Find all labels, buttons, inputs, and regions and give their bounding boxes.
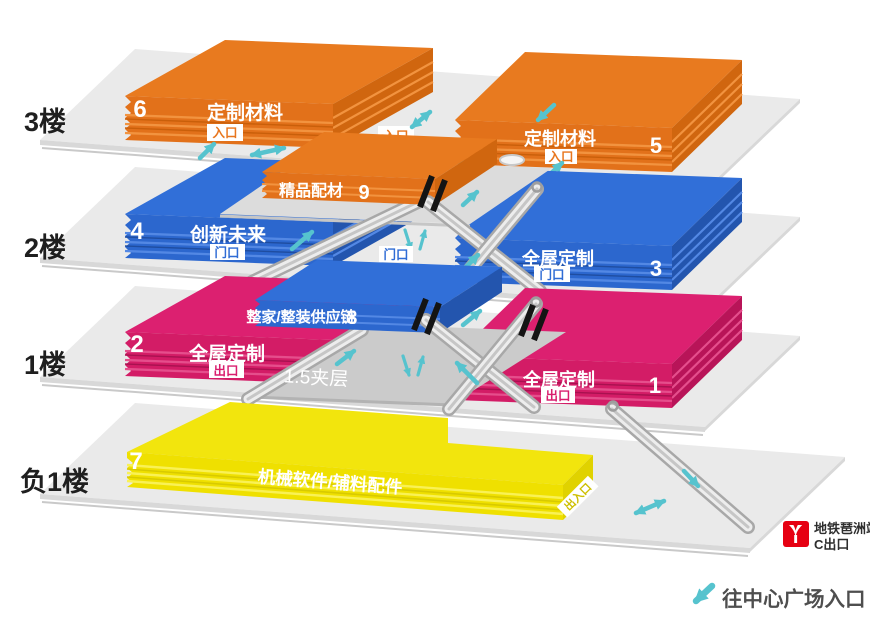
- arrow-down-left-icon: [696, 586, 712, 601]
- hall-8-name: 整家/整装供应链: [246, 308, 356, 326]
- hall-9-name: 精品配材: [279, 181, 343, 200]
- door-label-f2-left: 门口: [210, 244, 245, 260]
- hall-3-number: 3: [650, 256, 662, 281]
- hall-3-name: 全屋定制: [521, 248, 594, 269]
- door-f2-right-text: 门口: [539, 267, 564, 282]
- floor-3-label: 3楼: [24, 107, 66, 137]
- hall-8-number: 8: [347, 308, 358, 329]
- hall-9-number: 9: [358, 182, 369, 204]
- plaza-entrance-note: 往中心广场入口: [696, 586, 866, 611]
- door-f2-mid-text: 门口: [383, 247, 408, 262]
- hall-5-number: 5: [650, 133, 662, 158]
- mezzanine-label: 1.5夹层: [283, 365, 348, 390]
- door-f3-left-text: 入口: [212, 126, 237, 140]
- door-label-f3-left: 入口: [207, 124, 243, 141]
- floor-b1-label: 负1楼: [20, 467, 89, 497]
- floor-b1: 7 机械软件/辅料配件 出入口 地铁琶洲站 C出口: [40, 402, 870, 557]
- door-label-f1-left: 出口: [209, 361, 244, 378]
- door-f1-left-text: 出口: [213, 363, 238, 378]
- door-label-f2-mid: 门口: [379, 246, 413, 262]
- hall-5-name: 定制材料: [524, 128, 596, 149]
- plaza-note-text: 往中心广场入口: [722, 587, 866, 611]
- hall-4-number: 4: [130, 218, 144, 245]
- hall-1-number: 1: [649, 373, 661, 398]
- hall-6-name: 定制材料: [207, 101, 283, 124]
- floor-2-label: 2楼: [24, 233, 66, 263]
- floor-1-label: 1楼: [24, 350, 66, 380]
- hall-6-number: 6: [133, 96, 146, 123]
- hall-4-name: 创新未来: [189, 223, 266, 246]
- hall-7-number: 7: [129, 448, 142, 475]
- isometric-floor-map: 6 定制材料 定制材料 5 入口 入口: [0, 0, 870, 632]
- door-label-f2-right: 门口: [534, 266, 570, 282]
- door-f2-left-text: 门口: [214, 245, 239, 260]
- door-f1-right-text: 出口: [545, 388, 570, 403]
- metro-exit: 地铁琶洲站 C出口: [783, 521, 870, 552]
- metro-exit-name: C出口: [814, 537, 849, 552]
- floor-map-diagram: 6 定制材料 定制材料 5 入口 入口: [0, 0, 870, 632]
- hall-2-number: 2: [130, 331, 143, 358]
- metro-station-name: 地铁琶洲站: [814, 521, 870, 536]
- metro-logo-icon: [783, 521, 809, 547]
- escalator-hood: [500, 155, 524, 165]
- door-label-f1-right: 出口: [541, 387, 575, 403]
- hall-1-name: 全屋定制: [522, 369, 595, 390]
